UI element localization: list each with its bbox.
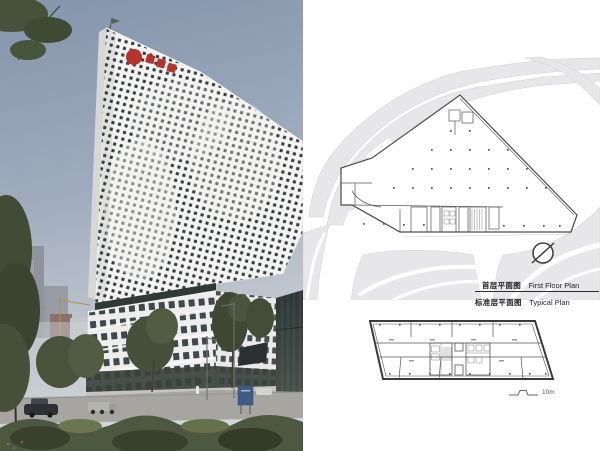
caption-divider — [475, 291, 599, 292]
photo-illustration — [0, 0, 303, 451]
foreground-shrubs — [0, 415, 303, 451]
typical-plan-caption-zh: 标准层平面图 — [475, 298, 522, 307]
first-floor-caption: 首层平面图 First Floor Plan — [475, 277, 599, 290]
typical-plan-caption-en: Typical Plan — [529, 298, 569, 307]
plan-captions: 首层平面图 First Floor Plan 标准层平面图 Typical Pl… — [475, 277, 599, 307]
first-floor-caption-en: First Floor Plan — [528, 281, 579, 290]
first-floor-caption-zh: 首层平面图 — [482, 281, 521, 290]
glass-building-right — [276, 290, 303, 394]
scale-label: 10m — [542, 389, 555, 396]
plans-panel: 首层平面图 First Floor Plan 标准层平面图 Typical Pl… — [303, 0, 600, 451]
building-photograph — [0, 0, 303, 451]
dimension-line — [403, 234, 571, 237]
scale-bar: 10m — [508, 388, 555, 397]
north-arrow-icon — [532, 243, 554, 263]
pedestrian — [196, 386, 199, 394]
first-floor-plan-drawing — [303, 55, 600, 300]
typical-plan-drawing — [303, 313, 600, 398]
scale-bar-icon — [508, 388, 540, 397]
typical-plan-caption: 标准层平面图 Typical Plan — [475, 294, 599, 307]
presentation-board: 首层平面图 First Floor Plan 标准层平面图 Typical Pl… — [0, 0, 600, 451]
typical-outline — [370, 321, 553, 379]
